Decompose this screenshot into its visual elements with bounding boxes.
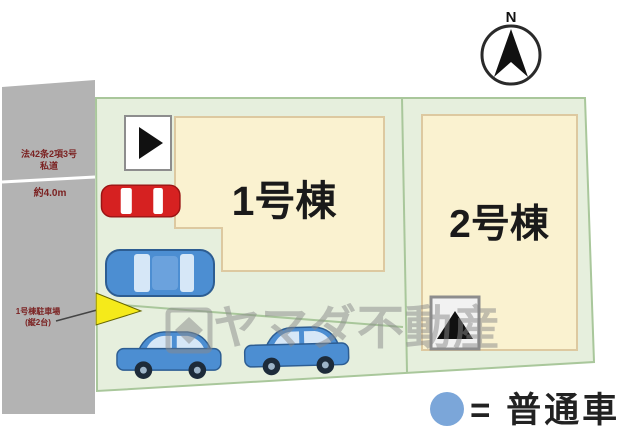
street-name-line1: 法42条2項3号 [21, 148, 77, 159]
site-plan: 1号棟 2号棟 [0, 0, 640, 431]
building-2-label: 2号棟 [449, 203, 550, 246]
legend: = 普通車 [430, 391, 620, 430]
entrance-right-marker [125, 116, 171, 170]
red-car-icon [101, 185, 179, 217]
legend-car-dot-icon [430, 392, 464, 426]
compass-n-label: N [506, 9, 517, 26]
blue-car-top-icon [106, 250, 214, 296]
road-strip [2, 80, 95, 414]
road-width-label: 約4.0m [34, 186, 67, 199]
legend-label: = 普通車 [470, 391, 620, 430]
site-plan-canvas: 1号棟 2号棟 [0, 0, 640, 431]
watermark-text: ヤマダ不動産 [213, 301, 501, 354]
north-compass-icon: N [482, 9, 540, 84]
parking-note-line2: (縦2台) [25, 317, 51, 327]
street-name-line2: 私道 [39, 160, 58, 171]
watermark: ヤマダ不動産 [168, 301, 501, 354]
building-1-label: 1号棟 [232, 178, 338, 224]
parking-note-line1: 1号棟駐車場 [16, 306, 60, 316]
